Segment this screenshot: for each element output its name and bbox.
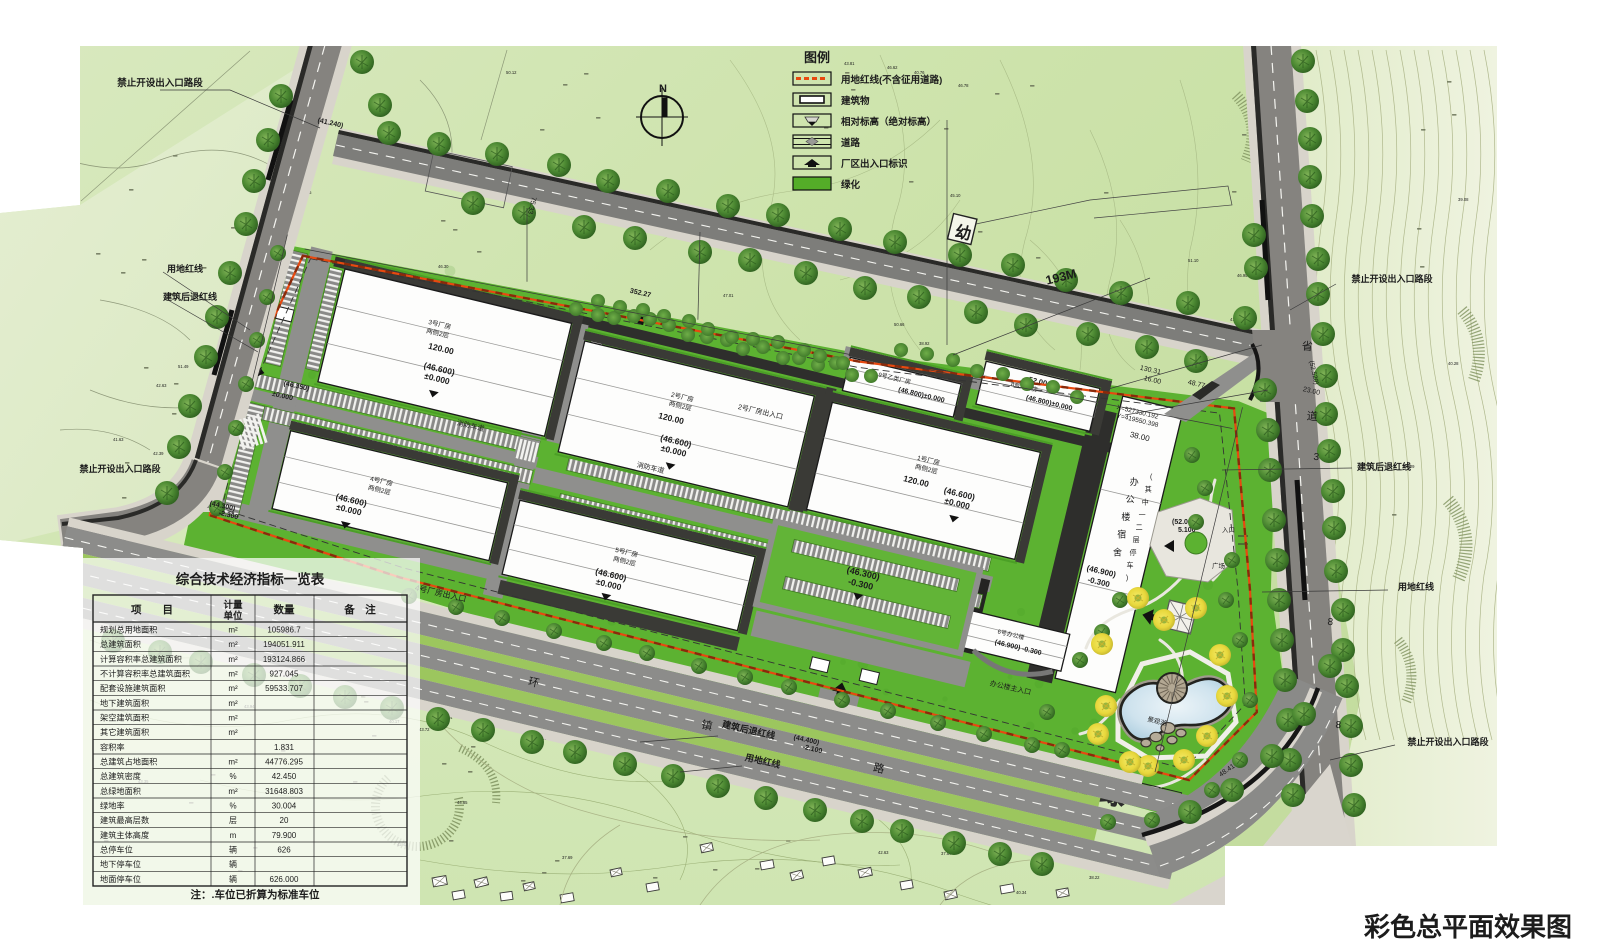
svg-text:31648.803: 31648.803	[265, 787, 303, 796]
svg-text:194051.911: 194051.911	[263, 640, 305, 649]
svg-text:46.62: 46.62	[887, 65, 898, 70]
svg-text:公: 公	[1126, 495, 1135, 505]
svg-text:中: 中	[1142, 497, 1149, 506]
svg-text:省: 省	[1301, 340, 1313, 354]
svg-text:m²: m²	[228, 714, 238, 723]
svg-text:m²: m²	[228, 787, 238, 796]
svg-text:层: 层	[229, 816, 237, 825]
svg-text:广场: 广场	[1212, 561, 1226, 570]
svg-text:绿化: 绿化	[841, 179, 861, 191]
svg-text:41.63: 41.63	[113, 437, 124, 442]
svg-text:m²: m²	[228, 655, 238, 664]
svg-text:禁止开设出入口路段: 禁止开设出入口路段	[1407, 736, 1489, 747]
svg-text:40.28: 40.28	[1448, 361, 1459, 366]
svg-text:): )	[1126, 575, 1128, 582]
svg-text:单位: 单位	[223, 610, 243, 622]
svg-text:建筑物: 建筑物	[840, 95, 870, 107]
svg-text:%: %	[229, 772, 236, 781]
svg-text:626.000: 626.000	[270, 875, 299, 884]
svg-text:m²: m²	[228, 728, 238, 737]
svg-text:总绿地面积: 总绿地面积	[100, 786, 141, 796]
svg-text:彩色总平面效果图: 彩色总平面效果图	[1363, 912, 1572, 942]
svg-text:计量: 计量	[223, 599, 243, 611]
svg-text:车: 车	[1127, 561, 1134, 570]
svg-text:入口: 入口	[1222, 526, 1235, 534]
svg-text:927.045: 927.045	[270, 670, 299, 679]
svg-text:道: 道	[1306, 409, 1318, 424]
svg-text:%: %	[229, 802, 236, 811]
svg-text:39.08: 39.08	[1458, 197, 1469, 202]
svg-text:51.49: 51.49	[178, 364, 189, 369]
svg-text:宿: 宿	[1117, 529, 1126, 540]
svg-text:42.450: 42.450	[272, 772, 297, 781]
svg-text:层: 层	[1133, 536, 1140, 544]
svg-text:N: N	[659, 83, 667, 95]
svg-text:其它建筑面积: 其它建筑面积	[100, 727, 149, 737]
svg-text:总建筑密度: 总建筑密度	[100, 771, 141, 781]
svg-text:总建筑面积: 总建筑面积	[100, 639, 141, 649]
svg-text:51.10: 51.10	[1188, 258, 1199, 263]
svg-text:道路: 道路	[841, 137, 861, 149]
svg-text:45.10: 45.10	[950, 193, 961, 198]
svg-text:626: 626	[277, 846, 291, 855]
svg-text:46.78: 46.78	[958, 83, 969, 88]
svg-text:综合技术经济指标一览表: 综合技术经济指标一览表	[176, 571, 325, 587]
svg-text:20: 20	[280, 816, 289, 825]
svg-text:办: 办	[1130, 476, 1139, 487]
svg-text:厂区出入口标识: 厂区出入口标识	[841, 158, 908, 170]
svg-text:规划总用地面积: 规划总用地面积	[100, 625, 157, 635]
svg-text:容积率: 容积率	[100, 742, 125, 752]
svg-text:备 注: 备 注	[343, 603, 376, 616]
svg-text:相对标高（绝对标高）: 相对标高（绝对标高）	[841, 116, 936, 128]
svg-text:楼: 楼	[1121, 511, 1130, 522]
svg-text:计算容积率总建筑面积: 计算容积率总建筑面积	[100, 654, 182, 664]
svg-text:50.66: 50.66	[894, 322, 905, 327]
svg-text:地下建筑面积: 地下建筑面积	[100, 698, 149, 708]
svg-text:辆: 辆	[229, 859, 237, 869]
svg-text:绿地率: 绿地率	[100, 801, 125, 811]
svg-text:数量: 数量	[273, 603, 295, 616]
svg-text:m: m	[230, 831, 237, 840]
svg-text:43.81: 43.81	[844, 61, 855, 66]
svg-text:架空建筑面积: 架空建筑面积	[100, 713, 149, 723]
svg-text:42.39: 42.39	[153, 451, 164, 456]
svg-text:建筑主体高度: 建筑主体高度	[100, 830, 149, 840]
svg-text:1.831: 1.831	[274, 743, 295, 752]
svg-text:辆: 辆	[229, 845, 237, 855]
svg-text:配套设施建筑面积: 配套设施建筑面积	[100, 683, 166, 693]
svg-text:38.92: 38.92	[919, 341, 930, 346]
svg-text:地面停车位: 地面停车位	[100, 874, 141, 884]
svg-text:禁止开设出入口路段: 禁止开设出入口路段	[1351, 273, 1433, 284]
svg-text:项 目: 项 目	[131, 604, 173, 616]
svg-text:舍: 舍	[1113, 546, 1122, 557]
svg-text:59533.707: 59533.707	[265, 684, 303, 693]
svg-text:用地红线(不含征用道路): 用地红线(不含征用道路)	[840, 74, 942, 86]
svg-text:79.900: 79.900	[272, 831, 297, 840]
svg-text:42.63: 42.63	[156, 383, 167, 388]
svg-text:193124.866: 193124.866	[263, 655, 306, 664]
svg-text:用地红线: 用地红线	[166, 263, 203, 274]
svg-text:30.004: 30.004	[272, 802, 297, 811]
svg-text:m²: m²	[228, 626, 238, 635]
svg-text:m²: m²	[228, 699, 238, 708]
svg-text:m²: m²	[228, 640, 238, 649]
svg-text:47.01: 47.01	[723, 293, 734, 298]
svg-text:50.12: 50.12	[506, 70, 517, 75]
svg-text:图例: 图例	[804, 50, 830, 65]
svg-text:44776.295: 44776.295	[265, 758, 303, 767]
svg-text:一: 一	[1139, 512, 1146, 519]
svg-text:38.22: 38.22	[1089, 875, 1100, 880]
svg-text:43.72: 43.72	[419, 727, 430, 732]
svg-text:禁止开设出入口路段: 禁止开设出入口路段	[79, 463, 161, 474]
svg-text:40.34: 40.34	[1016, 890, 1027, 895]
svg-text:建筑后退红线: 建筑后退红线	[1357, 461, 1411, 472]
svg-text:44.85: 44.85	[457, 800, 468, 805]
svg-text:用地红线: 用地红线	[1397, 581, 1434, 592]
svg-text:m²: m²	[228, 684, 238, 693]
svg-text:m²: m²	[228, 670, 238, 679]
svg-text:其: 其	[1145, 486, 1152, 494]
svg-text:105986.7: 105986.7	[267, 626, 301, 635]
svg-text:37.69: 37.69	[562, 855, 573, 860]
svg-text:总建筑占地面积: 总建筑占地面积	[100, 757, 157, 767]
svg-text:建筑最高层数: 建筑最高层数	[100, 815, 149, 825]
svg-text:不计算容积率总建筑面积: 不计算容积率总建筑面积	[100, 669, 190, 679]
svg-text:注：.车位已折算为标准车位: 注：.车位已折算为标准车位	[191, 888, 320, 901]
svg-text:建筑后退红线: 建筑后退红线	[163, 291, 217, 302]
svg-text:m²: m²	[228, 758, 238, 767]
svg-text:二: 二	[1136, 525, 1143, 532]
svg-text:42.63: 42.63	[878, 850, 889, 855]
svg-text:地下停车位: 地下停车位	[100, 859, 141, 869]
svg-text:辆: 辆	[229, 874, 237, 884]
svg-text:禁止开设出入口路段: 禁止开设出入口路段	[116, 77, 203, 89]
svg-text:停: 停	[1130, 548, 1137, 557]
svg-text:总停车位: 总停车位	[100, 845, 133, 855]
